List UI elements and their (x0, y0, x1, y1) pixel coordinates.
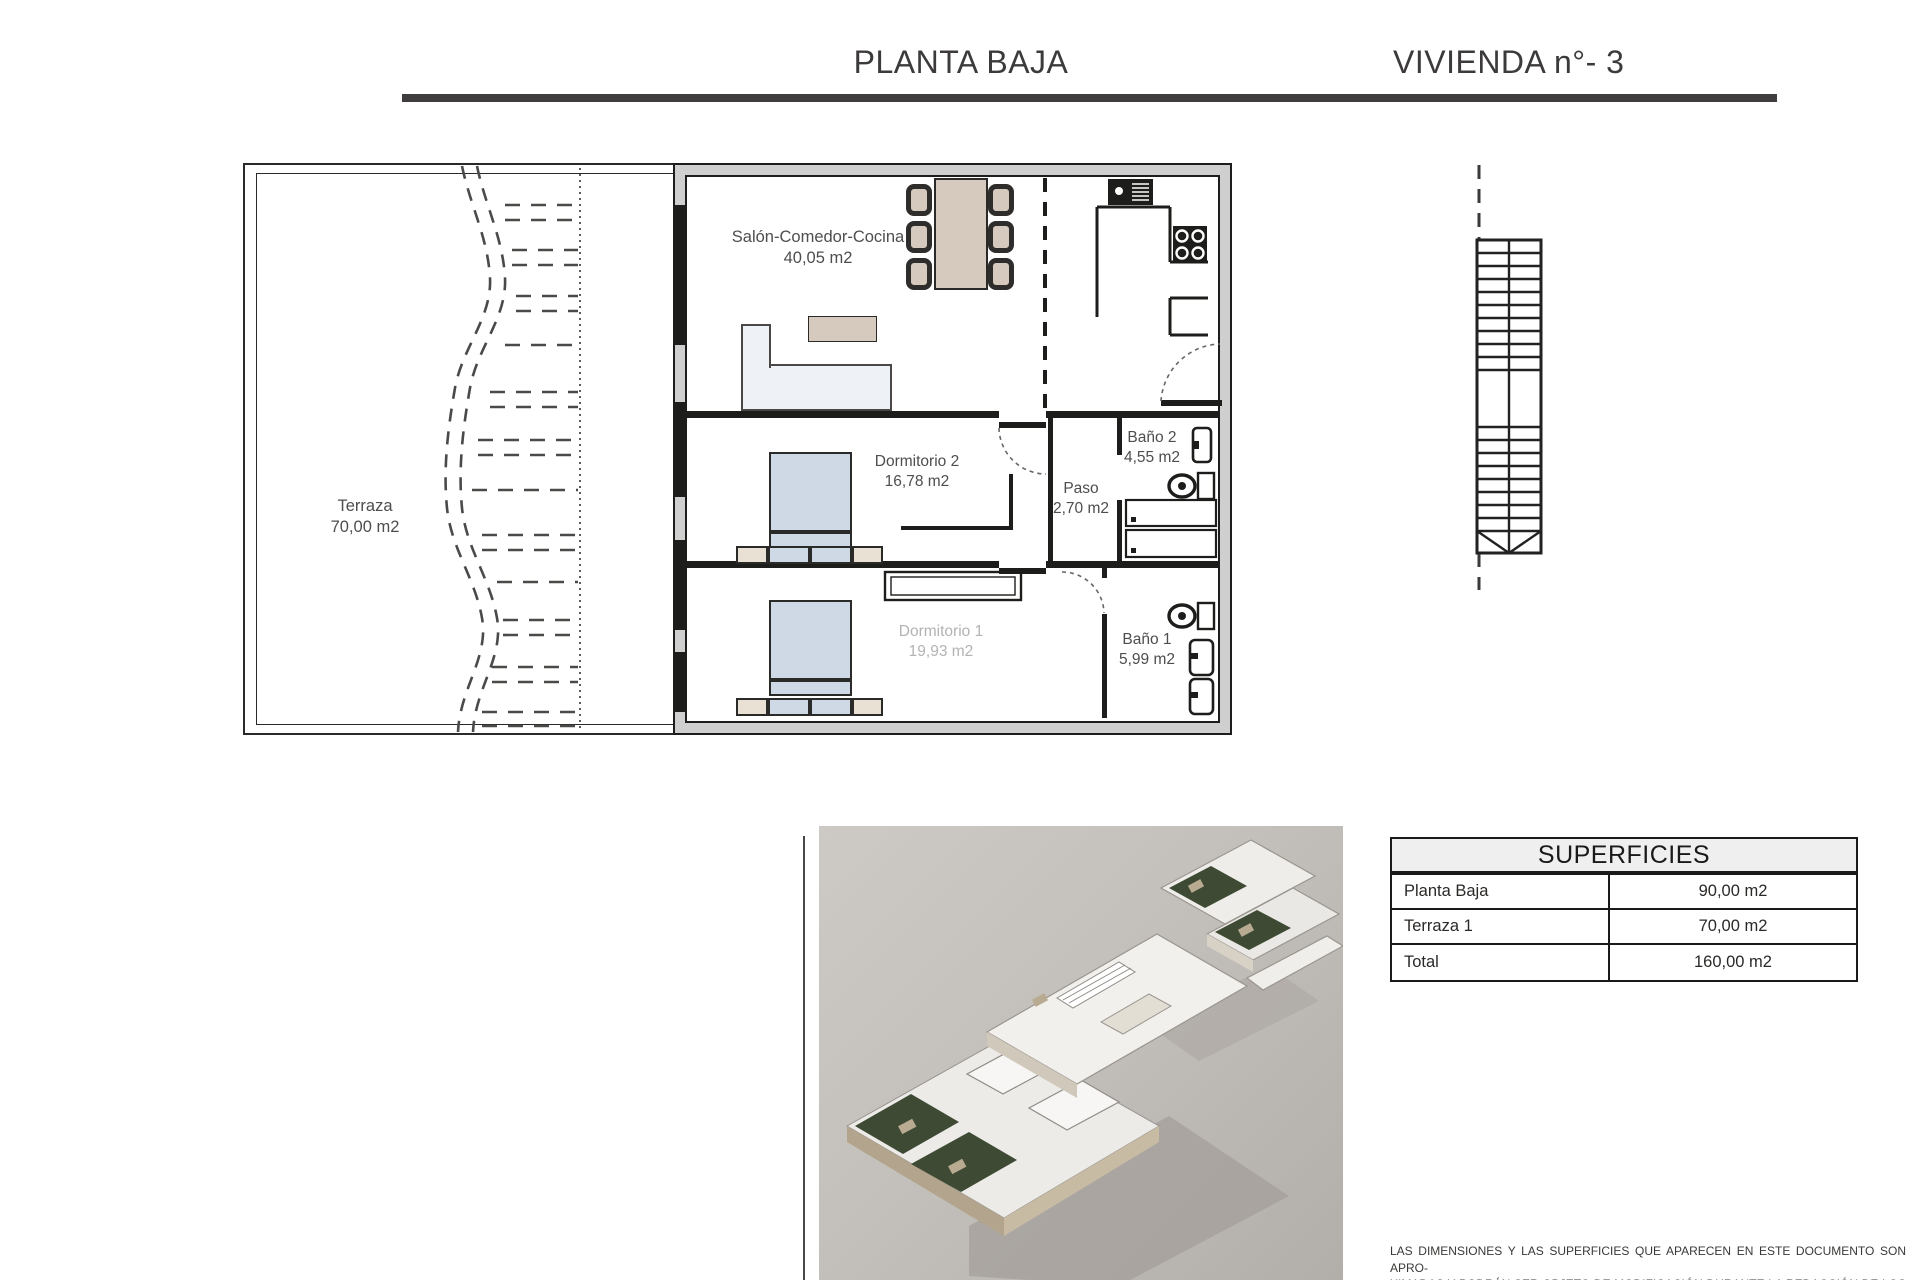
bed-base (810, 698, 852, 716)
row-value: 160,00 m2 (1610, 945, 1856, 980)
dining-table (934, 178, 988, 290)
salon-label: Salón-Comedor-Cocina 40,05 m2 (718, 227, 918, 269)
row-value: 90,00 m2 (1610, 875, 1856, 908)
disclaimer-line: LAS DIMENSIONES Y LAS SUPERFICIES QUE AP… (1390, 1243, 1906, 1276)
bed-base (768, 546, 810, 564)
disclaimer-line: XIMADAS Y PODRÁN SER OBJETO DE MODIFICAC… (1390, 1276, 1906, 1280)
floor-plan-sheet: PLANTA BAJA VIVIENDA n°- 3 Terraza 70,00… (0, 0, 1920, 1280)
staircase (1477, 165, 1541, 590)
table-row: Terraza 1 70,00 m2 (1392, 910, 1856, 945)
dormitorio2-label: Dormitorio 2 16,78 m2 (857, 452, 977, 492)
bed-base (810, 546, 852, 564)
nightstand (736, 698, 768, 716)
row-label: Terraza 1 (1392, 910, 1610, 943)
row-label: Total (1392, 945, 1610, 980)
wall-salon-dorm2-b (1046, 411, 1220, 418)
terraza-outline (243, 163, 690, 735)
window-salon (675, 205, 686, 345)
paso-label: Paso 2,70 m2 (1040, 479, 1122, 519)
superficies-table: Planta Baja 90,00 m2 Terraza 1 70,00 m2 … (1390, 873, 1858, 982)
bed-base (768, 698, 810, 716)
nightstand (852, 698, 883, 716)
window-dormitorio1 (675, 540, 686, 630)
disclaimer-text: LAS DIMENSIONES Y LAS SUPERFICIES QUE AP… (1390, 1243, 1906, 1280)
terraza-label: Terraza 70,00 m2 (290, 496, 440, 538)
render-3d-drawing (819, 826, 1343, 1280)
chair (988, 258, 1014, 290)
row-value: 70,00 m2 (1610, 910, 1856, 943)
door-leaf-entrance (1161, 400, 1222, 406)
row-label: Planta Baja (1392, 875, 1610, 908)
bed-foot-dormitorio1 (769, 680, 852, 696)
nightstand (736, 546, 768, 564)
wall-salon-dorm2-a (687, 411, 999, 418)
bed-dormitorio2 (769, 452, 852, 532)
coffee-table (808, 316, 877, 342)
window-dormitorio1-b (675, 652, 686, 712)
table-row: Total 160,00 m2 (1392, 945, 1856, 980)
wall-bano1-left-a (1102, 568, 1107, 578)
kitchen-sink (1108, 179, 1153, 205)
chair (988, 184, 1014, 216)
sofa (741, 364, 892, 411)
wall-dorm2-dorm1-b (1046, 561, 1220, 568)
bano1-label: Baño 1 5,99 m2 (1107, 630, 1187, 670)
header-rule (402, 94, 1777, 102)
bed-dormitorio1 (769, 600, 852, 680)
terraza-inner-outline (256, 173, 688, 725)
chair (988, 221, 1014, 253)
superficies-table-header: SUPERFICIES (1390, 837, 1858, 873)
render-3d-image (819, 826, 1343, 1280)
render-divider-line (803, 836, 805, 1280)
door-leaf-dormitorio2 (999, 422, 1046, 428)
door-leaf-dormitorio1 (999, 568, 1046, 574)
table-row: Planta Baja 90,00 m2 (1392, 875, 1856, 910)
page-title-vivienda: VIVIENDA n°- 3 (1393, 44, 1653, 81)
nightstand (852, 546, 883, 564)
page-title-planta-baja: PLANTA BAJA (811, 44, 1111, 81)
sofa-chaise (741, 324, 771, 368)
dormitorio1-label: Dormitorio 1 19,93 m2 (881, 622, 1001, 662)
chair (906, 184, 932, 216)
window-dormitorio2 (675, 402, 686, 497)
bano2-label: Baño 2 4,55 m2 (1112, 428, 1192, 468)
